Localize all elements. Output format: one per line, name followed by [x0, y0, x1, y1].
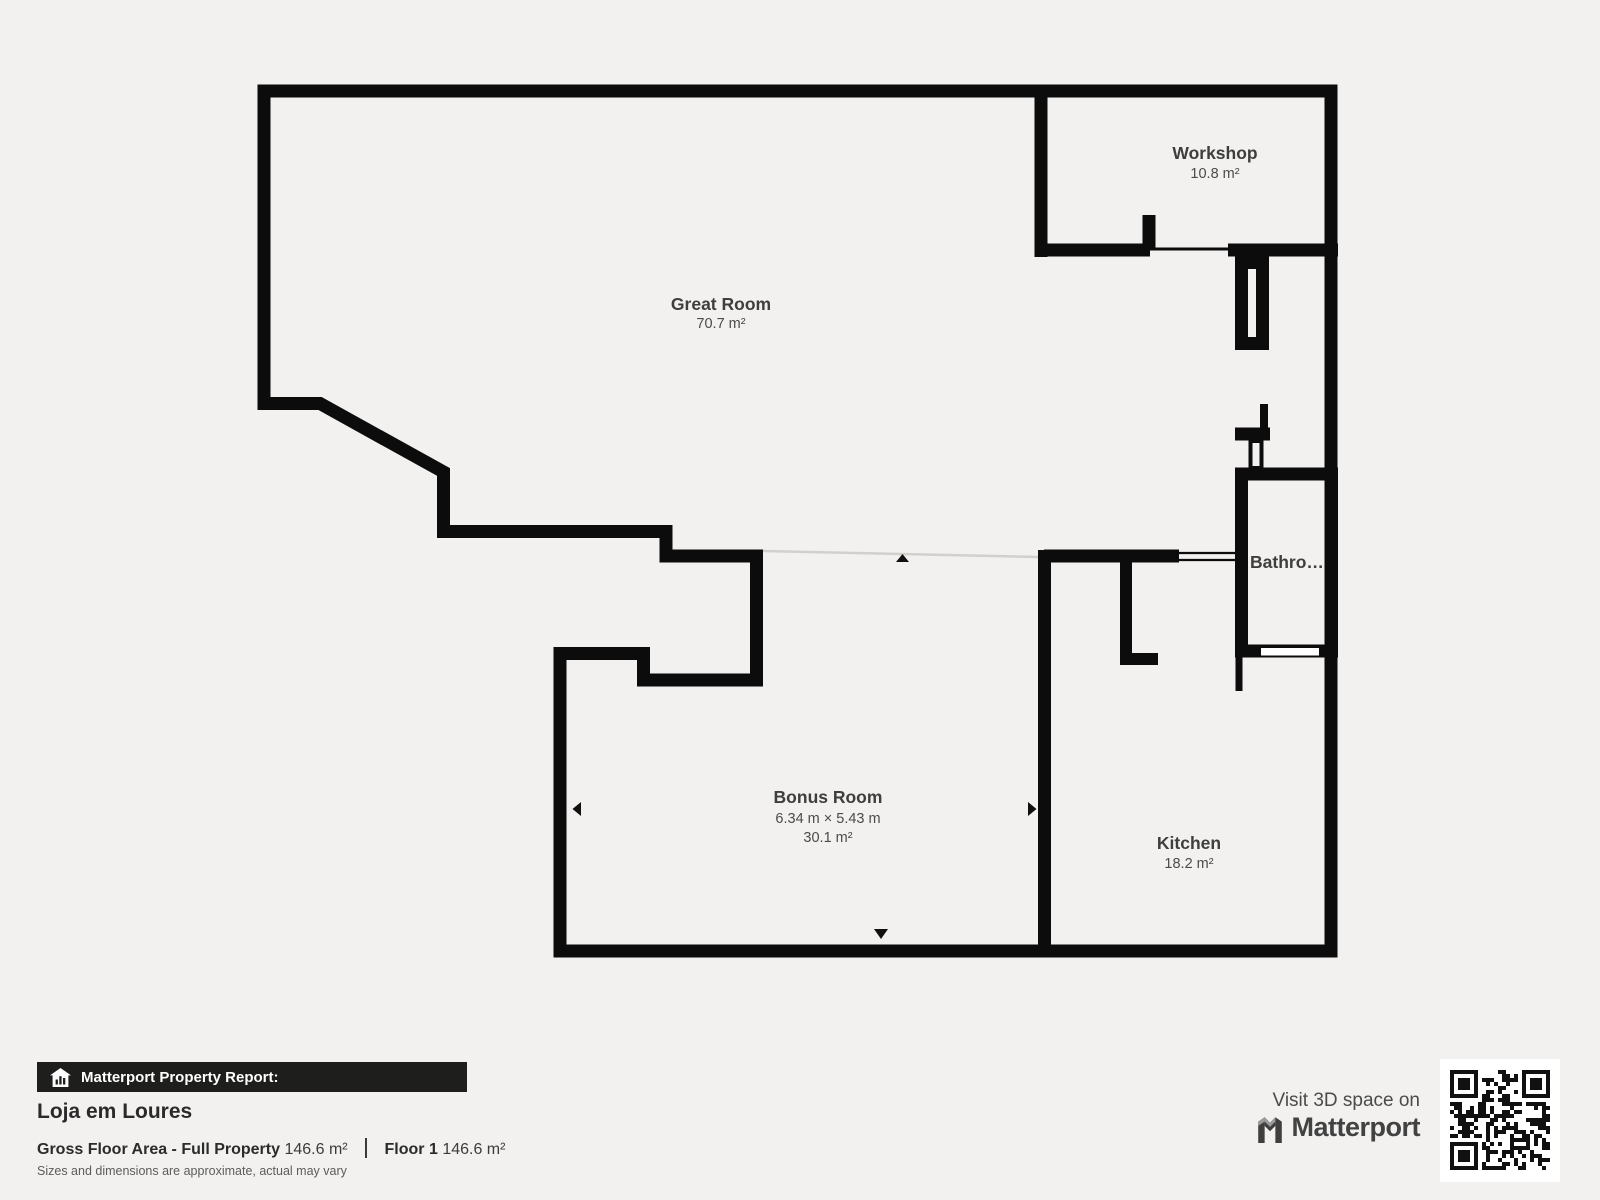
- gross-area-label: Gross Floor Area - Full Property: [37, 1141, 280, 1158]
- bathroom-door: [1261, 648, 1319, 656]
- kitchen-label: Kitchen: [1157, 833, 1221, 853]
- workshop-label: Workshop: [1172, 143, 1257, 163]
- matterport-logo: Matterport: [1180, 1112, 1420, 1143]
- bathroom-label: Bathro…: [1250, 552, 1324, 572]
- dimension-arrows: [573, 554, 1037, 939]
- gross-area-value: 146.6 m²: [284, 1141, 347, 1158]
- report-bar: Matterport Property Report:: [37, 1062, 467, 1092]
- property-name: Loja em Loures: [37, 1100, 192, 1124]
- great-room-area: 70.7 m²: [696, 316, 745, 332]
- visit-3d-text: Visit 3D space on: [1180, 1090, 1420, 1112]
- report-bar-label: Matterport Property Report:: [81, 1069, 279, 1086]
- room-separation-line: [763, 551, 1038, 557]
- void-hall-notch: [1251, 441, 1262, 468]
- great-room-label: Great Room: [671, 294, 771, 314]
- floor-label: Floor 1: [385, 1141, 438, 1158]
- room-labels: Great Room 70.7 m² Workshop 10.8 m² Bath…: [671, 143, 1324, 872]
- arrow-left-icon: [573, 802, 582, 816]
- bonus-room-label: Bonus Room: [774, 787, 883, 807]
- floor-value: 146.6 m²: [442, 1141, 505, 1158]
- workshop-area: 10.8 m²: [1190, 166, 1239, 182]
- report-disclaimer: Sizes and dimensions are approximate, ac…: [37, 1164, 347, 1178]
- void-kitchen-notch: [1133, 563, 1159, 573]
- report-stats: Gross Floor Area - Full Property 146.6 m…: [37, 1138, 505, 1159]
- void-shaft: [1242, 263, 1263, 344]
- house-chart-icon: [50, 1068, 71, 1087]
- kitchen-area: 18.2 m²: [1164, 856, 1213, 872]
- qr-code-image: [1450, 1070, 1550, 1170]
- bonus-room-area: 30.1 m²: [803, 830, 852, 846]
- qr-code: [1440, 1059, 1560, 1182]
- interior-walls: [1035, 91, 1338, 951]
- kitchen-door: [1176, 553, 1237, 560]
- arrow-right-icon: [1028, 802, 1037, 816]
- floor-plan: Great Room 70.7 m² Workshop 10.8 m² Bath…: [0, 0, 1600, 1200]
- arrow-down-icon: [874, 929, 888, 939]
- stats-divider: [365, 1138, 367, 1158]
- matterport-wordmark: Matterport: [1292, 1112, 1421, 1143]
- bonus-room-dims: 6.34 m × 5.43 m: [775, 811, 880, 827]
- matterport-m-icon: [1256, 1113, 1284, 1143]
